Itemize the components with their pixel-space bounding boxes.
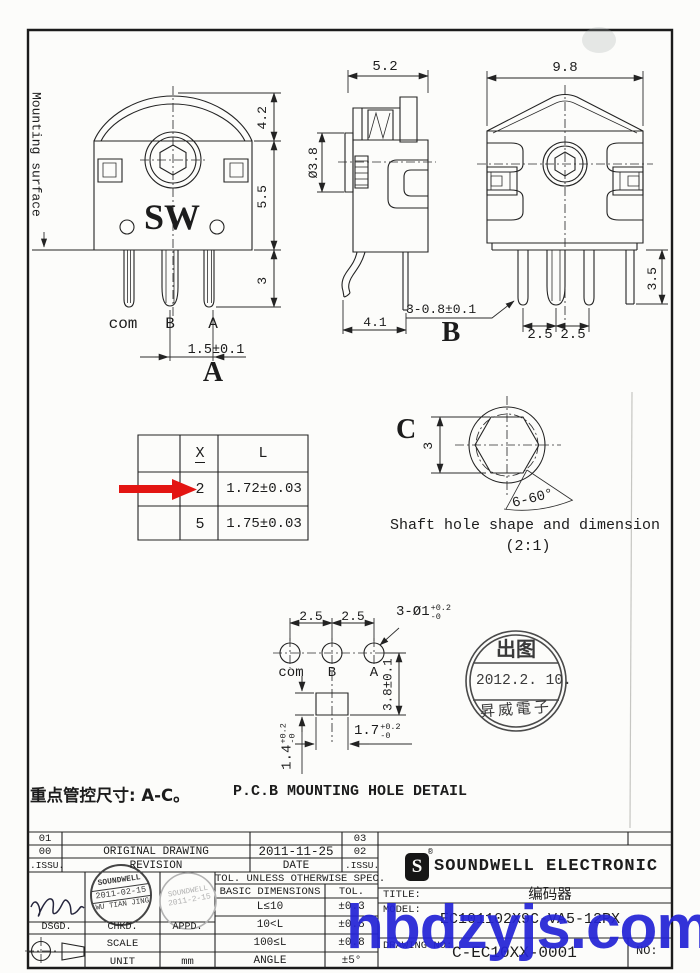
pcb-1-7-tol: +0.2-0 <box>380 723 400 740</box>
third-angle-projection-icon <box>25 937 84 965</box>
tol-row2-dim: 10<L <box>215 920 325 932</box>
stamp-date: 2012.2. 10. <box>476 674 556 689</box>
view-c-back <box>477 71 668 332</box>
view-b-side <box>317 70 514 334</box>
pin-label-com: com <box>105 316 141 333</box>
engineering-drawing-sheet: Mounting surface 4.2 5.5 3 SW com B A 1.… <box>0 0 700 973</box>
rev-r1c1: 01 <box>30 834 60 845</box>
company-name: SOUNDWELL ELECTRONIC <box>434 858 658 876</box>
dim-pins-3-0-8: 3-0.8±0.1 <box>406 303 476 317</box>
rev-r3c4: .ISSU. <box>345 861 375 871</box>
rev-r3c1: .ISSU. <box>30 861 60 871</box>
chkd-label: CHKD. <box>85 923 160 934</box>
pcb-dim-1-4: 1.4 +0.2-0 <box>280 715 297 779</box>
appd-label: APPD. <box>160 923 215 934</box>
tol-row4-dim: ANGLE <box>215 956 325 968</box>
xl-row2-l: 1.75±0.03 <box>221 517 307 532</box>
pcb-dim-1-7: 1.7 +0.2-0 <box>354 723 401 740</box>
tol-row1-dim: L≤10 <box>215 902 325 914</box>
sheet-frame <box>28 30 672 968</box>
dim-4-1: 4.1 <box>353 316 397 330</box>
rev-r2c3: 2011-11-25 <box>250 846 342 859</box>
site-watermark: hbdzyjs.com <box>346 892 700 963</box>
shaft-hole-scale: (2:1) <box>500 539 556 555</box>
dim-5-5: 5.5 <box>256 177 270 217</box>
mounting-surface-label: Mounting surface <box>29 92 43 257</box>
logo-registered-mark: ® <box>428 849 433 857</box>
dim-2-5-left: 2.5 <box>526 328 554 343</box>
xl-row2-x: 5 <box>190 517 210 533</box>
tol-header: TOL. UNLESS OTHERWISE SPEC. <box>215 874 378 885</box>
unit-label: UNIT <box>85 957 160 968</box>
rev-r2c2: ORIGINAL DRAWING <box>62 847 250 859</box>
dsgd-label: DSGD. <box>28 923 85 934</box>
pcb-hole-callout: 3-Ø1 +0.2-0 <box>396 604 451 621</box>
rev-r3c3: DATE <box>250 861 342 873</box>
pcb-1-4-tol: +0.2-0 <box>280 723 297 743</box>
xl-col-l: L <box>250 446 276 462</box>
dim-4-2: 4.2 <box>256 98 270 138</box>
soundwell-logo: S <box>405 853 429 881</box>
pcb-callout-tol: +0.2-0 <box>431 604 451 621</box>
pcb-1-4-base: 1.4 <box>281 745 296 770</box>
shaft-hole-caption: Shaft hole shape and dimension <box>390 518 660 534</box>
pcb-pin-com: com <box>276 666 306 681</box>
rev-r3c2: REVISION <box>62 861 250 873</box>
pcb-pin-b: B <box>325 666 339 681</box>
pcb-dim-2-5-right: 2.5 <box>341 610 365 624</box>
dim-2-5-right: 2.5 <box>559 328 587 343</box>
sw-logo-mark: SW <box>142 199 202 237</box>
pcb-1-7-base: 1.7 <box>354 724 379 739</box>
pcb-dim-2-5-left: 2.5 <box>299 610 323 624</box>
dim-3-pin: 3 <box>256 261 270 301</box>
key-dim-label-b: B <box>437 318 465 347</box>
logo-s-glyph: S <box>412 856 423 878</box>
pcb-callout-base: 3-Ø1 <box>396 605 430 620</box>
key-dim-label-a: A <box>198 358 228 387</box>
unit-value: mm <box>160 957 215 968</box>
pcb-dim-3-8: 3.8±0.1 <box>382 650 395 720</box>
highlight-arrow <box>119 479 197 500</box>
tol-row3-dim: 100≤L <box>215 938 325 950</box>
scale-label: SCALE <box>85 939 160 950</box>
stamp-release-text: 出图 <box>486 639 546 660</box>
pcb-pin-a: A <box>367 666 381 681</box>
key-control-note: 重点管控尺寸: A-C。 <box>30 787 190 804</box>
dim-9-8: 9.8 <box>543 61 587 76</box>
drawing-linework <box>0 0 700 973</box>
xl-row1-l: 1.72±0.03 <box>221 482 307 497</box>
pin-label-b: B <box>162 316 178 333</box>
dim-3-5: 3.5 <box>646 259 660 299</box>
xl-row1-x: 2 <box>190 482 210 498</box>
scan-smudge <box>582 27 616 53</box>
rev-r1c4: 03 <box>345 834 375 845</box>
x-underlined: X <box>195 445 204 463</box>
pcb-caption: P.C.B MOUNTING HOLE DETAIL <box>233 784 467 800</box>
rev-r2c1: 00 <box>30 847 60 858</box>
tol-col-dim: BASIC DIMENSIONS <box>215 887 325 898</box>
rev-r2c4: 02 <box>345 847 375 858</box>
pin-label-a: A <box>205 316 221 333</box>
scan-crease <box>630 392 632 828</box>
xl-col-x: X <box>190 446 210 462</box>
key-dim-label-c: C <box>396 415 416 444</box>
designer-signature <box>31 899 84 916</box>
dim-5-2: 5.2 <box>363 60 407 75</box>
dim-hex-3: 3 <box>422 426 436 466</box>
dim-shaft-dia: Ø3.8 <box>307 141 321 185</box>
